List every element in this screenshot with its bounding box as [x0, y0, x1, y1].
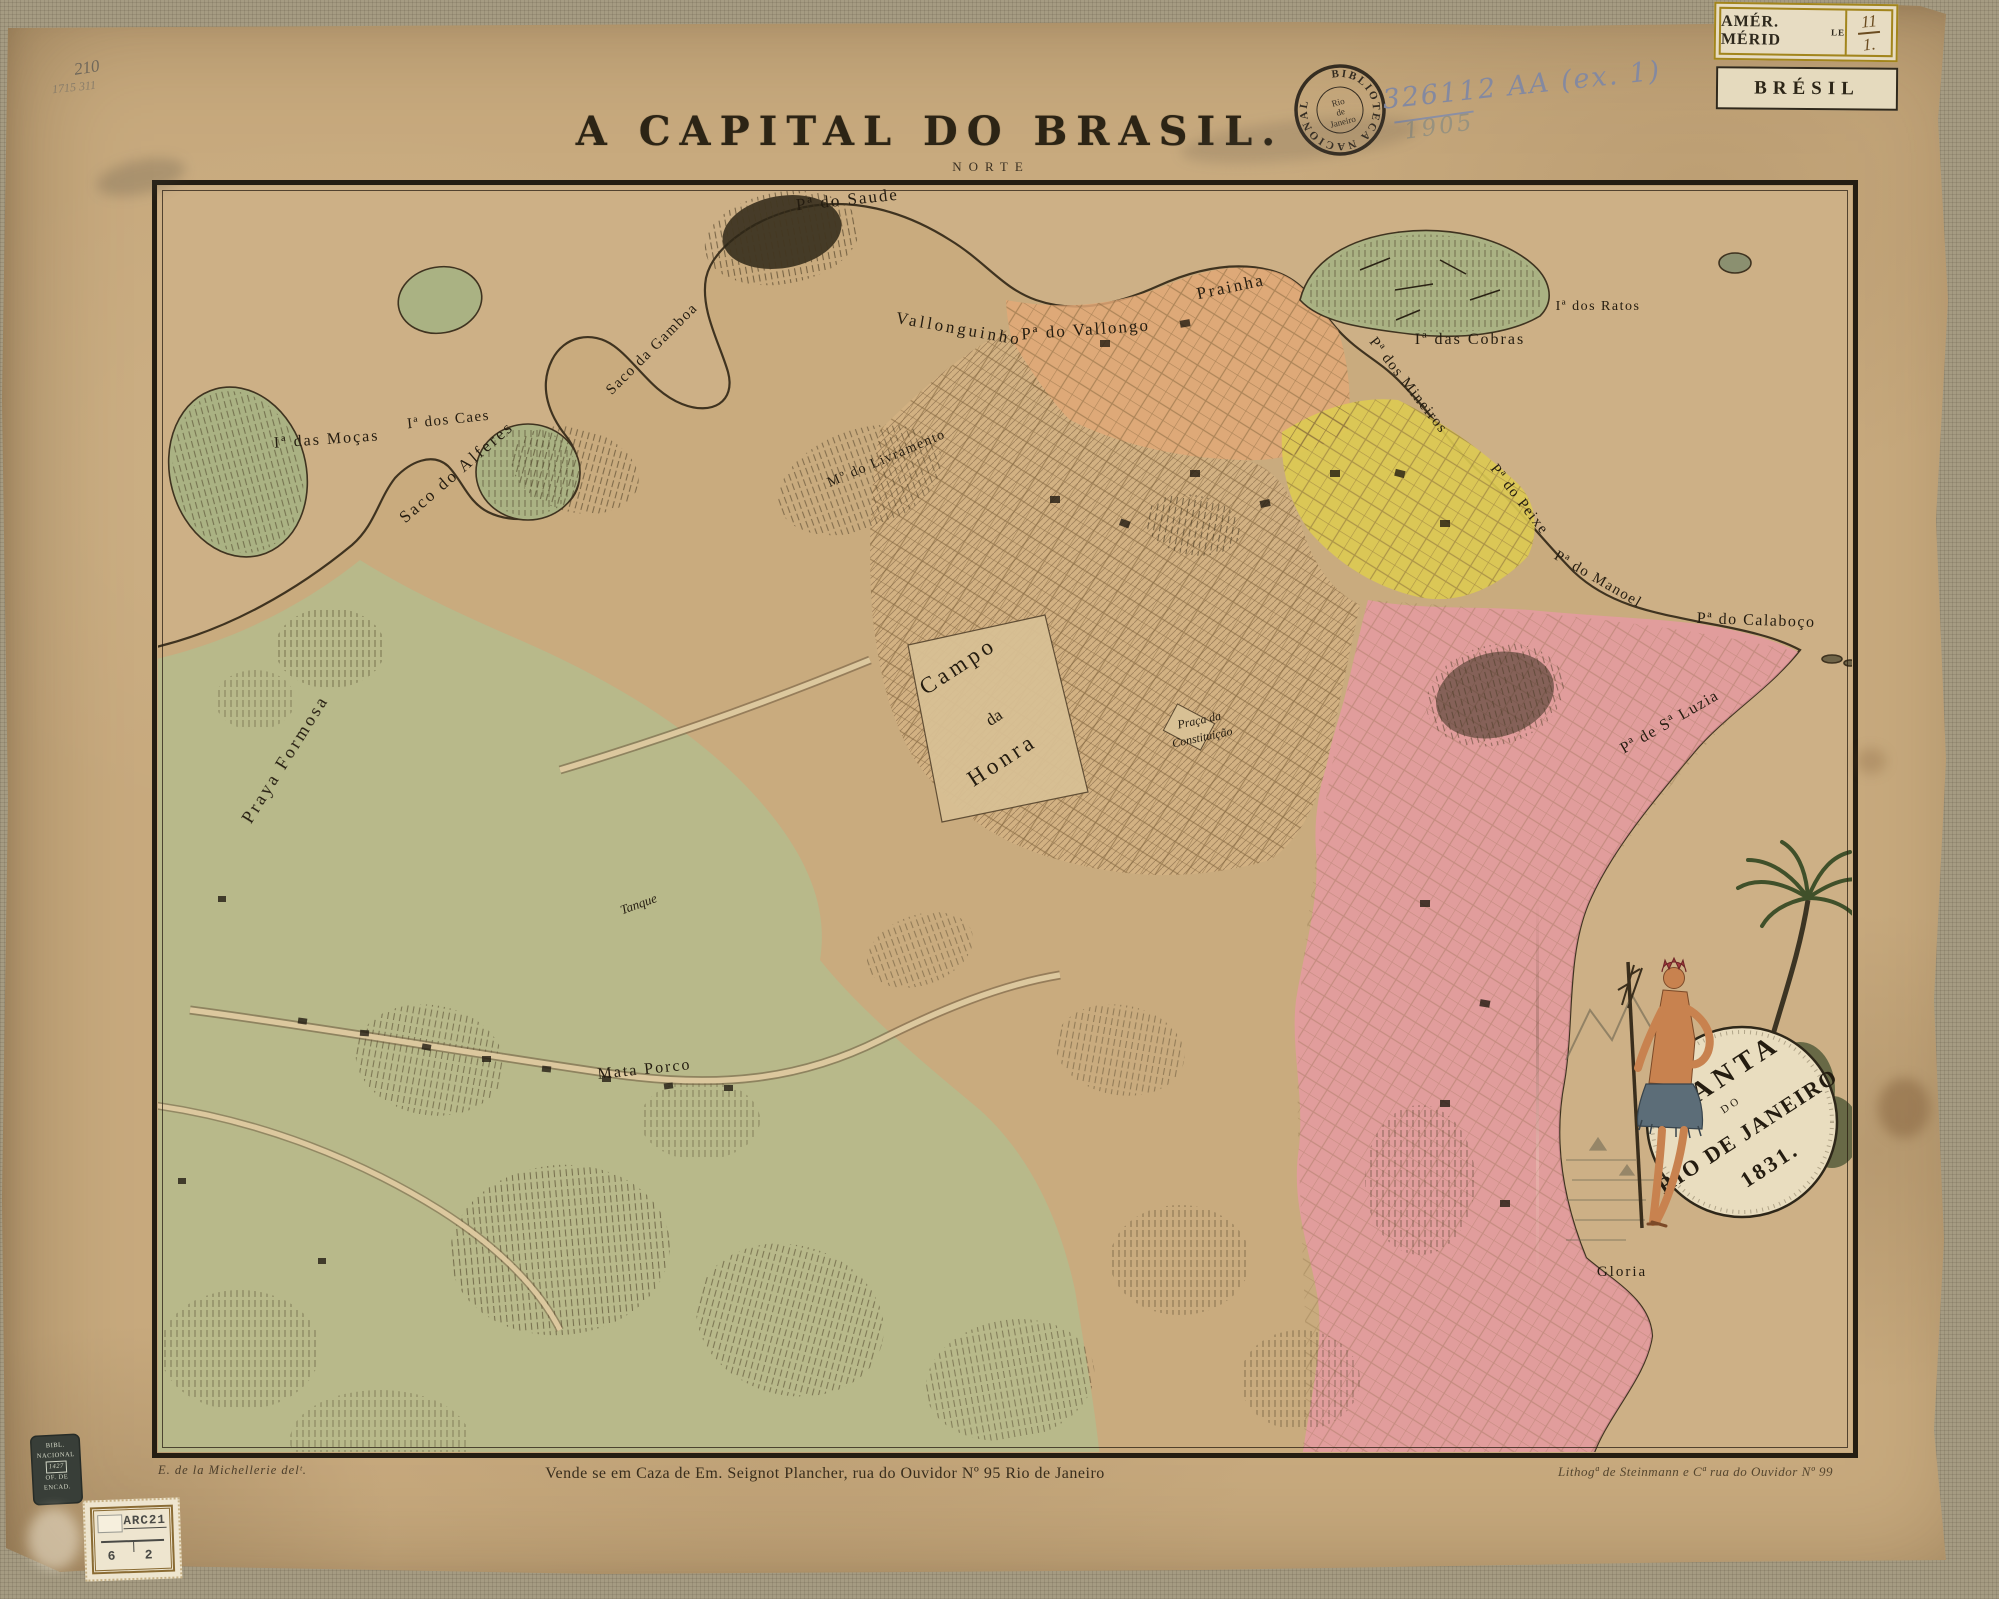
delineator-credit: E. de la Michellerie delᵗ. — [158, 1463, 318, 1478]
lithographer-imprint: Lithogª de Steinmann e Cª rua do Ouvidor… — [1558, 1464, 1858, 1480]
worn-patch-bottom-left — [28, 1508, 80, 1570]
bindery-stamp: BIBL. NACIONAL 1427 OF. DE ENCAD. — [31, 1435, 81, 1504]
bindery-stamp-line-5: ENCAD. — [34, 1482, 81, 1495]
catalog-stamp: ARC21 6 2 — [83, 1497, 183, 1581]
catalog-stamp-stem — [133, 1540, 135, 1552]
map-neatline-inner — [162, 190, 1848, 1448]
publisher-imprint: Vende se em Caza de Em. Seignot Plancher… — [515, 1465, 1135, 1483]
scanned-map-sheet: 210 1715 311 A CAPITAL DO BRASIL. NORTE … — [0, 0, 1999, 1599]
stain-right-small — [1856, 748, 1886, 774]
catalog-stamp-box — [97, 1514, 123, 1533]
bindery-stamp-number: 1427 — [46, 1461, 68, 1474]
catalog-stamp-right-number: 2 — [144, 1547, 152, 1562]
paper-crease — [1536, 900, 1539, 1290]
catalog-stamp-code: ARC21 — [123, 1513, 166, 1529]
map-neatline-frame — [152, 180, 1858, 1458]
stain-right — [1878, 1078, 1930, 1138]
catalog-stamp-left-number: 6 — [107, 1549, 115, 1564]
